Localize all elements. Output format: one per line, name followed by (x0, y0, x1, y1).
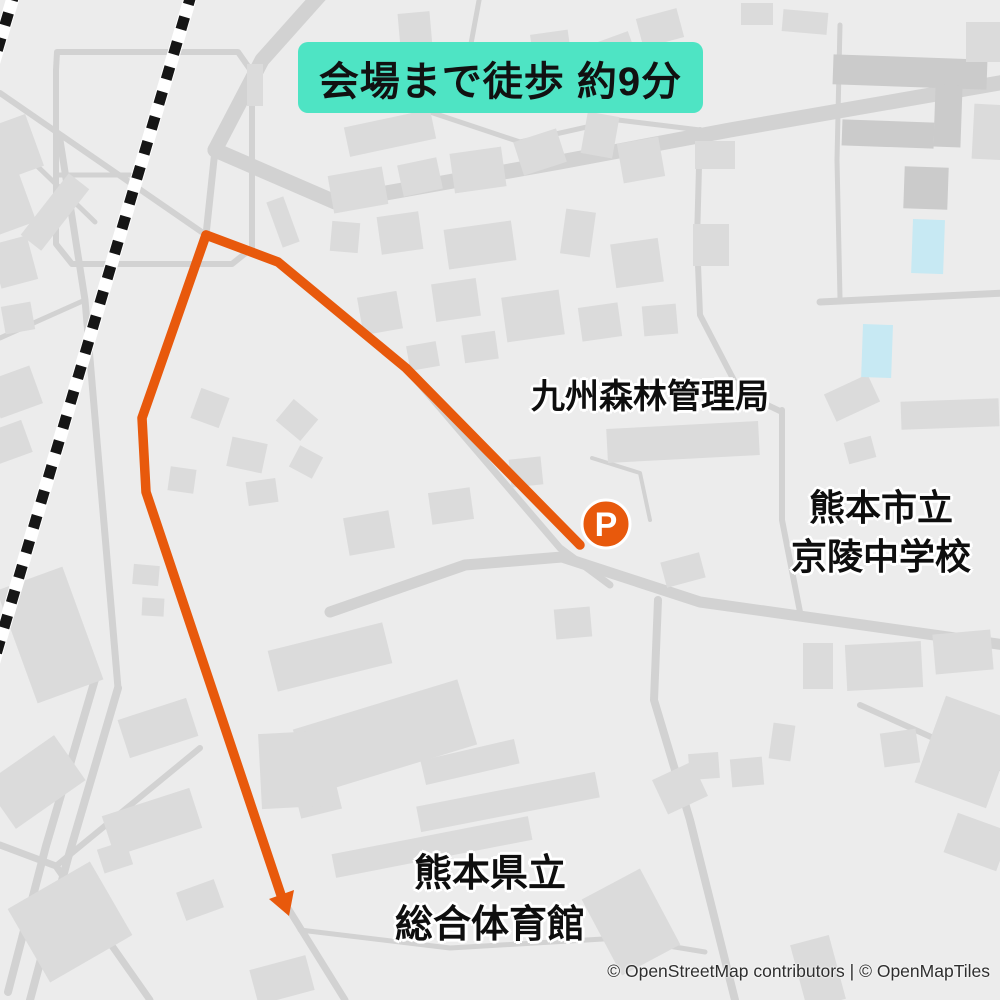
building-footprint (966, 22, 1000, 62)
walk-time-banner: 会場まで徒歩 約9分 (298, 42, 703, 113)
label-line: 九州森林管理局 (531, 378, 769, 416)
building-footprint (560, 209, 596, 258)
building-footprint (578, 302, 622, 341)
building-footprint (610, 238, 664, 288)
building-footprint (617, 137, 665, 184)
building-footprint (972, 104, 1000, 161)
building-footprint (377, 211, 424, 254)
building-footprint (903, 166, 948, 210)
map-canvas: P 会場まで徒歩 約9分 九州森林管理局 熊本市立 京陵中学校 熊本県立 総合体… (0, 0, 1000, 1000)
building-footprint (1, 302, 35, 335)
building-footprint (554, 606, 592, 639)
building-footprint (901, 398, 1000, 429)
building-footprint (167, 466, 196, 493)
building-footprint (833, 54, 988, 89)
building-footprint (501, 290, 565, 343)
building-footprint (741, 3, 773, 25)
building-footprint (842, 119, 935, 148)
building-footprint (782, 9, 829, 35)
building-footprint (132, 564, 160, 586)
pool (861, 324, 893, 378)
building-footprint (406, 341, 440, 371)
building-footprint (258, 731, 324, 809)
building-footprint (933, 85, 962, 148)
building-footprint (449, 147, 506, 194)
building-footprint (880, 729, 920, 768)
building-footprint (431, 278, 481, 322)
label-line: 総合体育館 (375, 900, 605, 951)
label-prefectural-gymnasium: 熊本県立 総合体育館 (375, 849, 605, 951)
building-footprint (245, 478, 278, 506)
building-footprint (845, 641, 923, 691)
building-footprint (642, 304, 678, 337)
attribution-text: © OpenStreetMap contributors | © OpenMap… (607, 961, 990, 981)
label-line: 京陵中学校 (771, 532, 991, 581)
building-footprint (693, 224, 729, 266)
building-footprint (461, 331, 499, 363)
walk-time-text: 会場まで徒歩 約9分 (319, 49, 682, 107)
building-footprint (428, 487, 474, 525)
pool (911, 219, 945, 274)
building-footprint (695, 141, 735, 169)
building-footprint (343, 510, 395, 555)
building-footprint (803, 643, 833, 689)
label-line: 熊本県立 (375, 849, 605, 900)
map-attribution: © OpenStreetMap contributors | © OpenMap… (607, 961, 990, 982)
label-forestry-bureau: 九州森林管理局 (505, 376, 795, 418)
building-footprint (932, 630, 993, 675)
building-footprint (142, 597, 165, 616)
parking-marker-letter: P (595, 506, 618, 544)
label-junior-high-school: 熊本市立 京陵中学校 (771, 483, 991, 581)
building-footprint (730, 757, 764, 788)
building-footprint (247, 64, 263, 106)
label-line: 熊本市立 (771, 483, 991, 532)
building-footprint (330, 221, 361, 253)
